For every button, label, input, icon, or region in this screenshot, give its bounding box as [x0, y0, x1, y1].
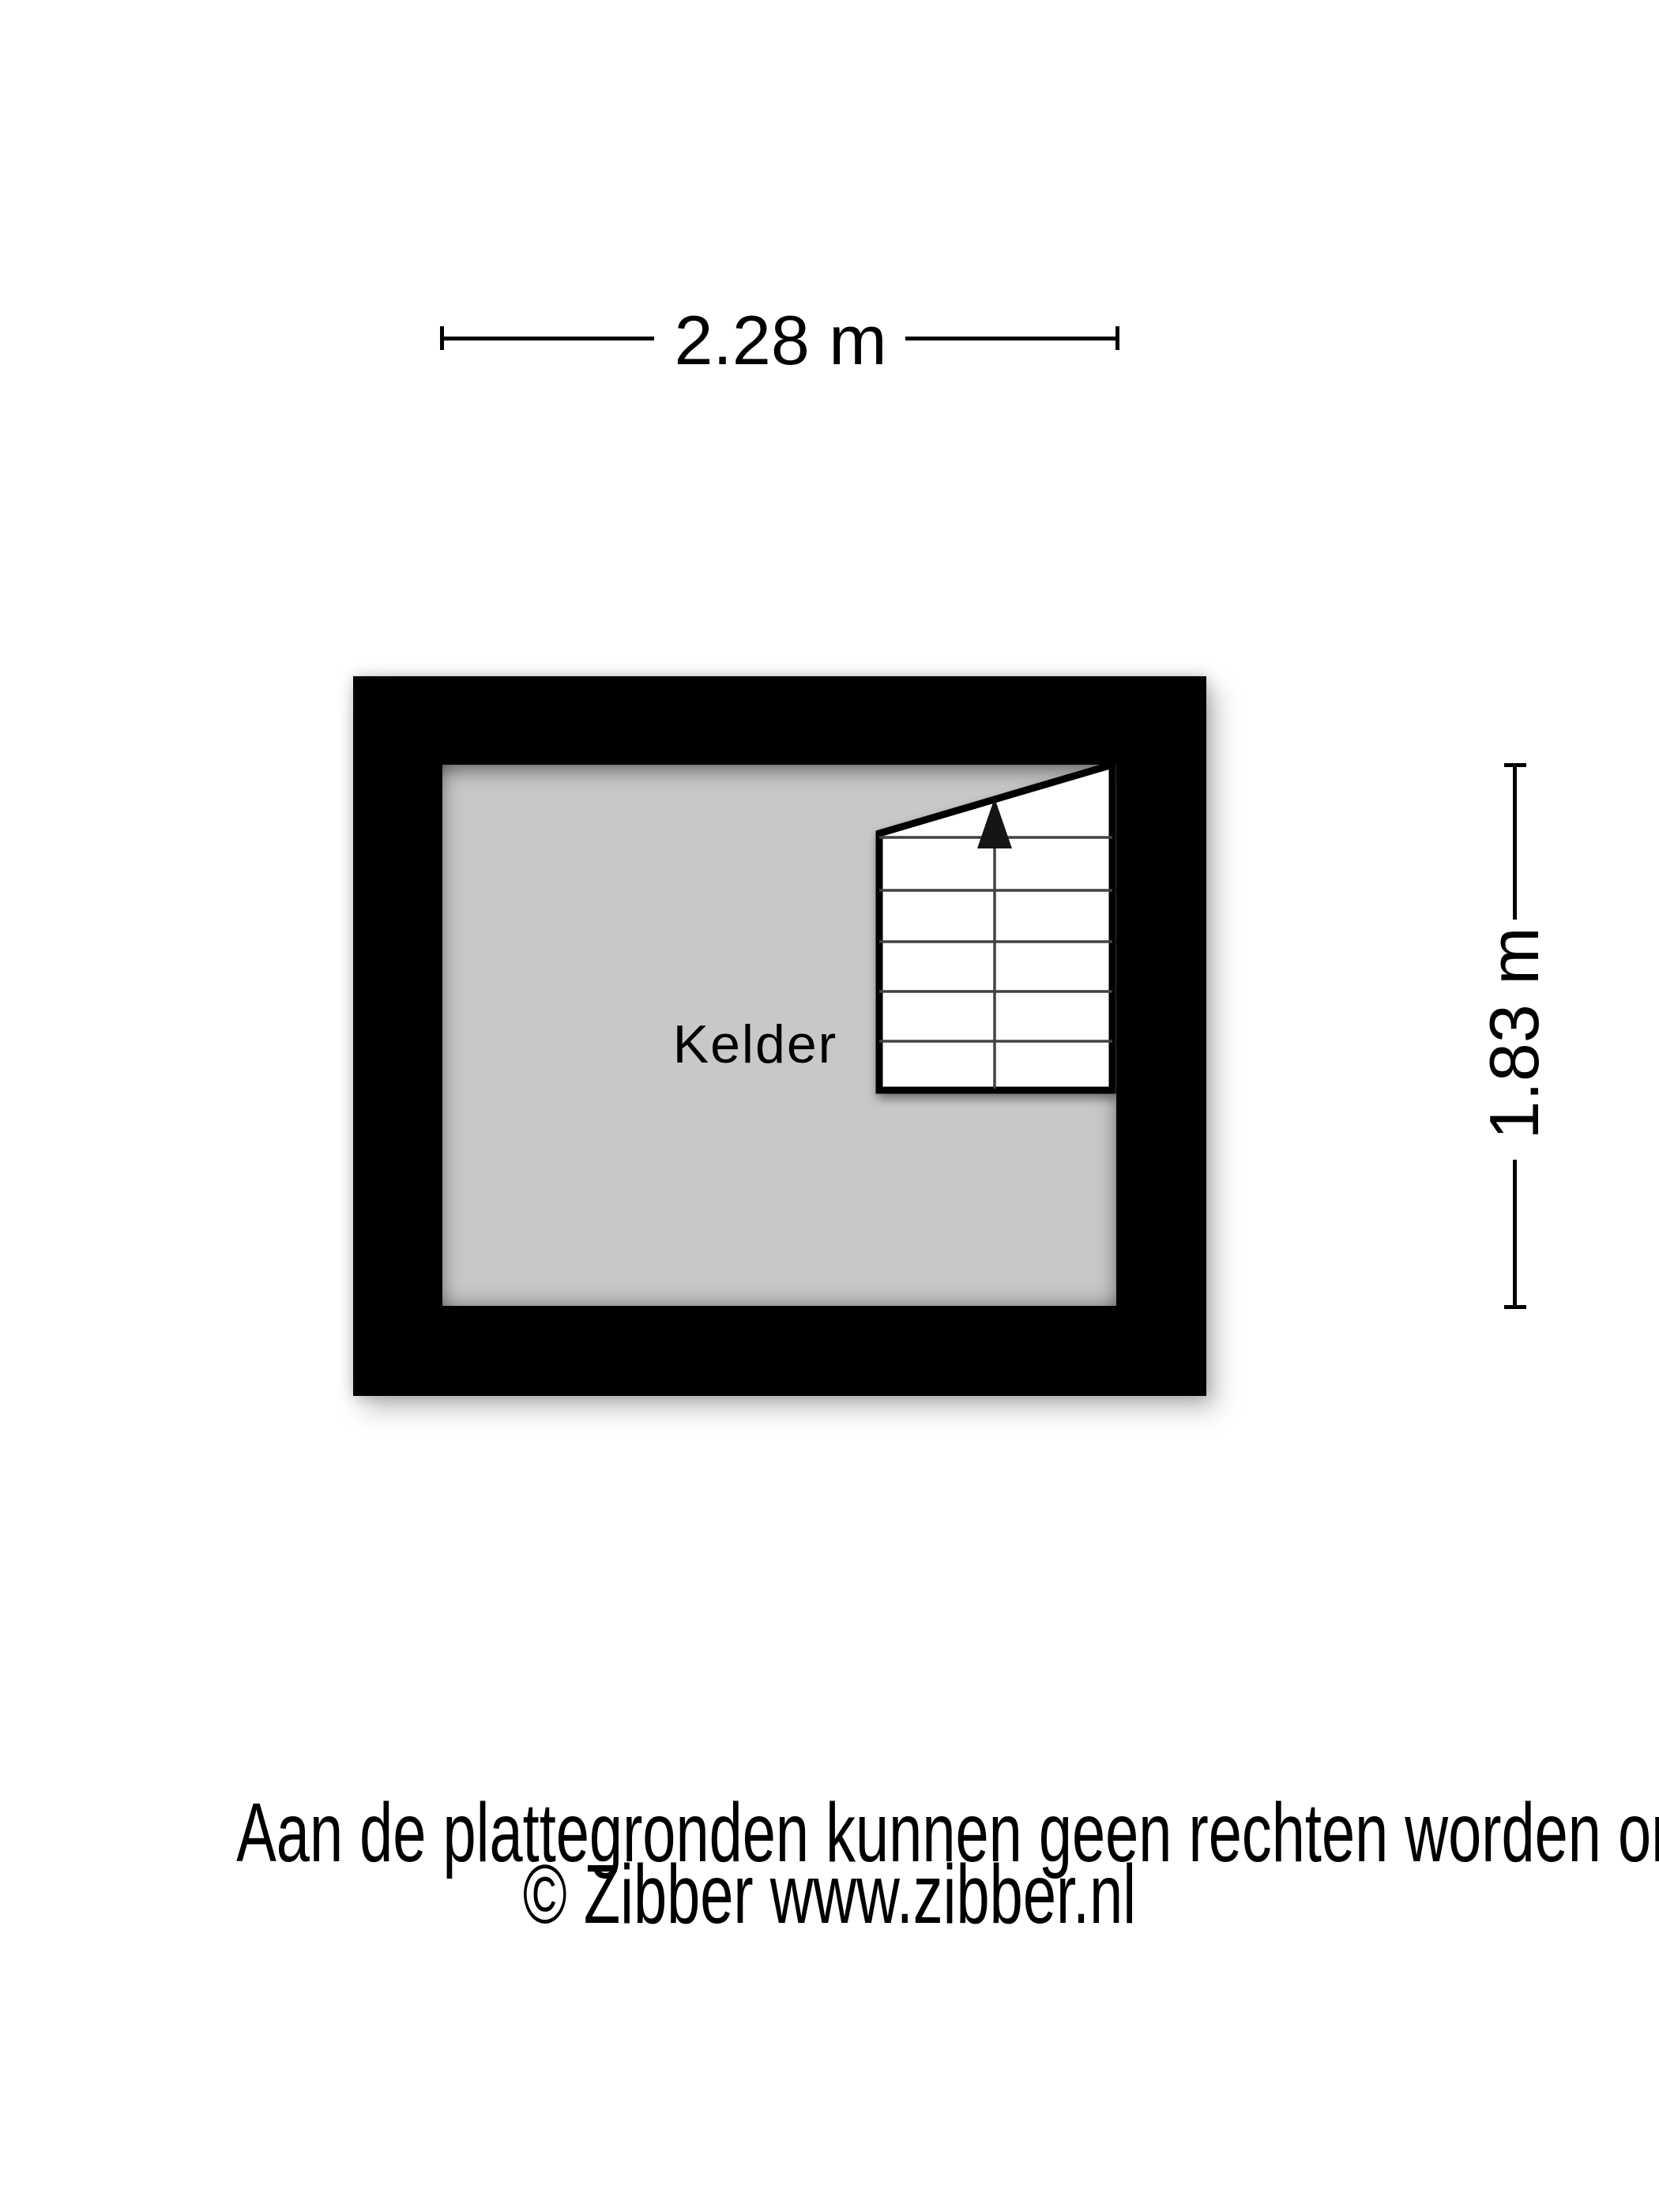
- height-dimension-label: 1.83 m: [1478, 915, 1551, 1152]
- room-label: Kelder: [637, 1015, 874, 1074]
- width-dimension-line-left: [442, 337, 654, 340]
- width-dimension-line-right: [905, 337, 1117, 340]
- height-dimension-line-bottom: [1513, 1160, 1517, 1307]
- footer-copyright: © Zibber www.zibber.nl: [236, 1853, 1423, 1936]
- staircase: [872, 758, 1117, 1094]
- height-dimension-tick-bottom: [1504, 1305, 1526, 1309]
- height-dimension-line-top: [1513, 765, 1517, 920]
- width-dimension-tick-right: [1115, 326, 1119, 350]
- floorplan-page: 2.28 m Kelder 1.83 m Aan de plattegronde…: [0, 0, 1659, 2212]
- width-dimension-label: 2.28 m: [666, 304, 895, 377]
